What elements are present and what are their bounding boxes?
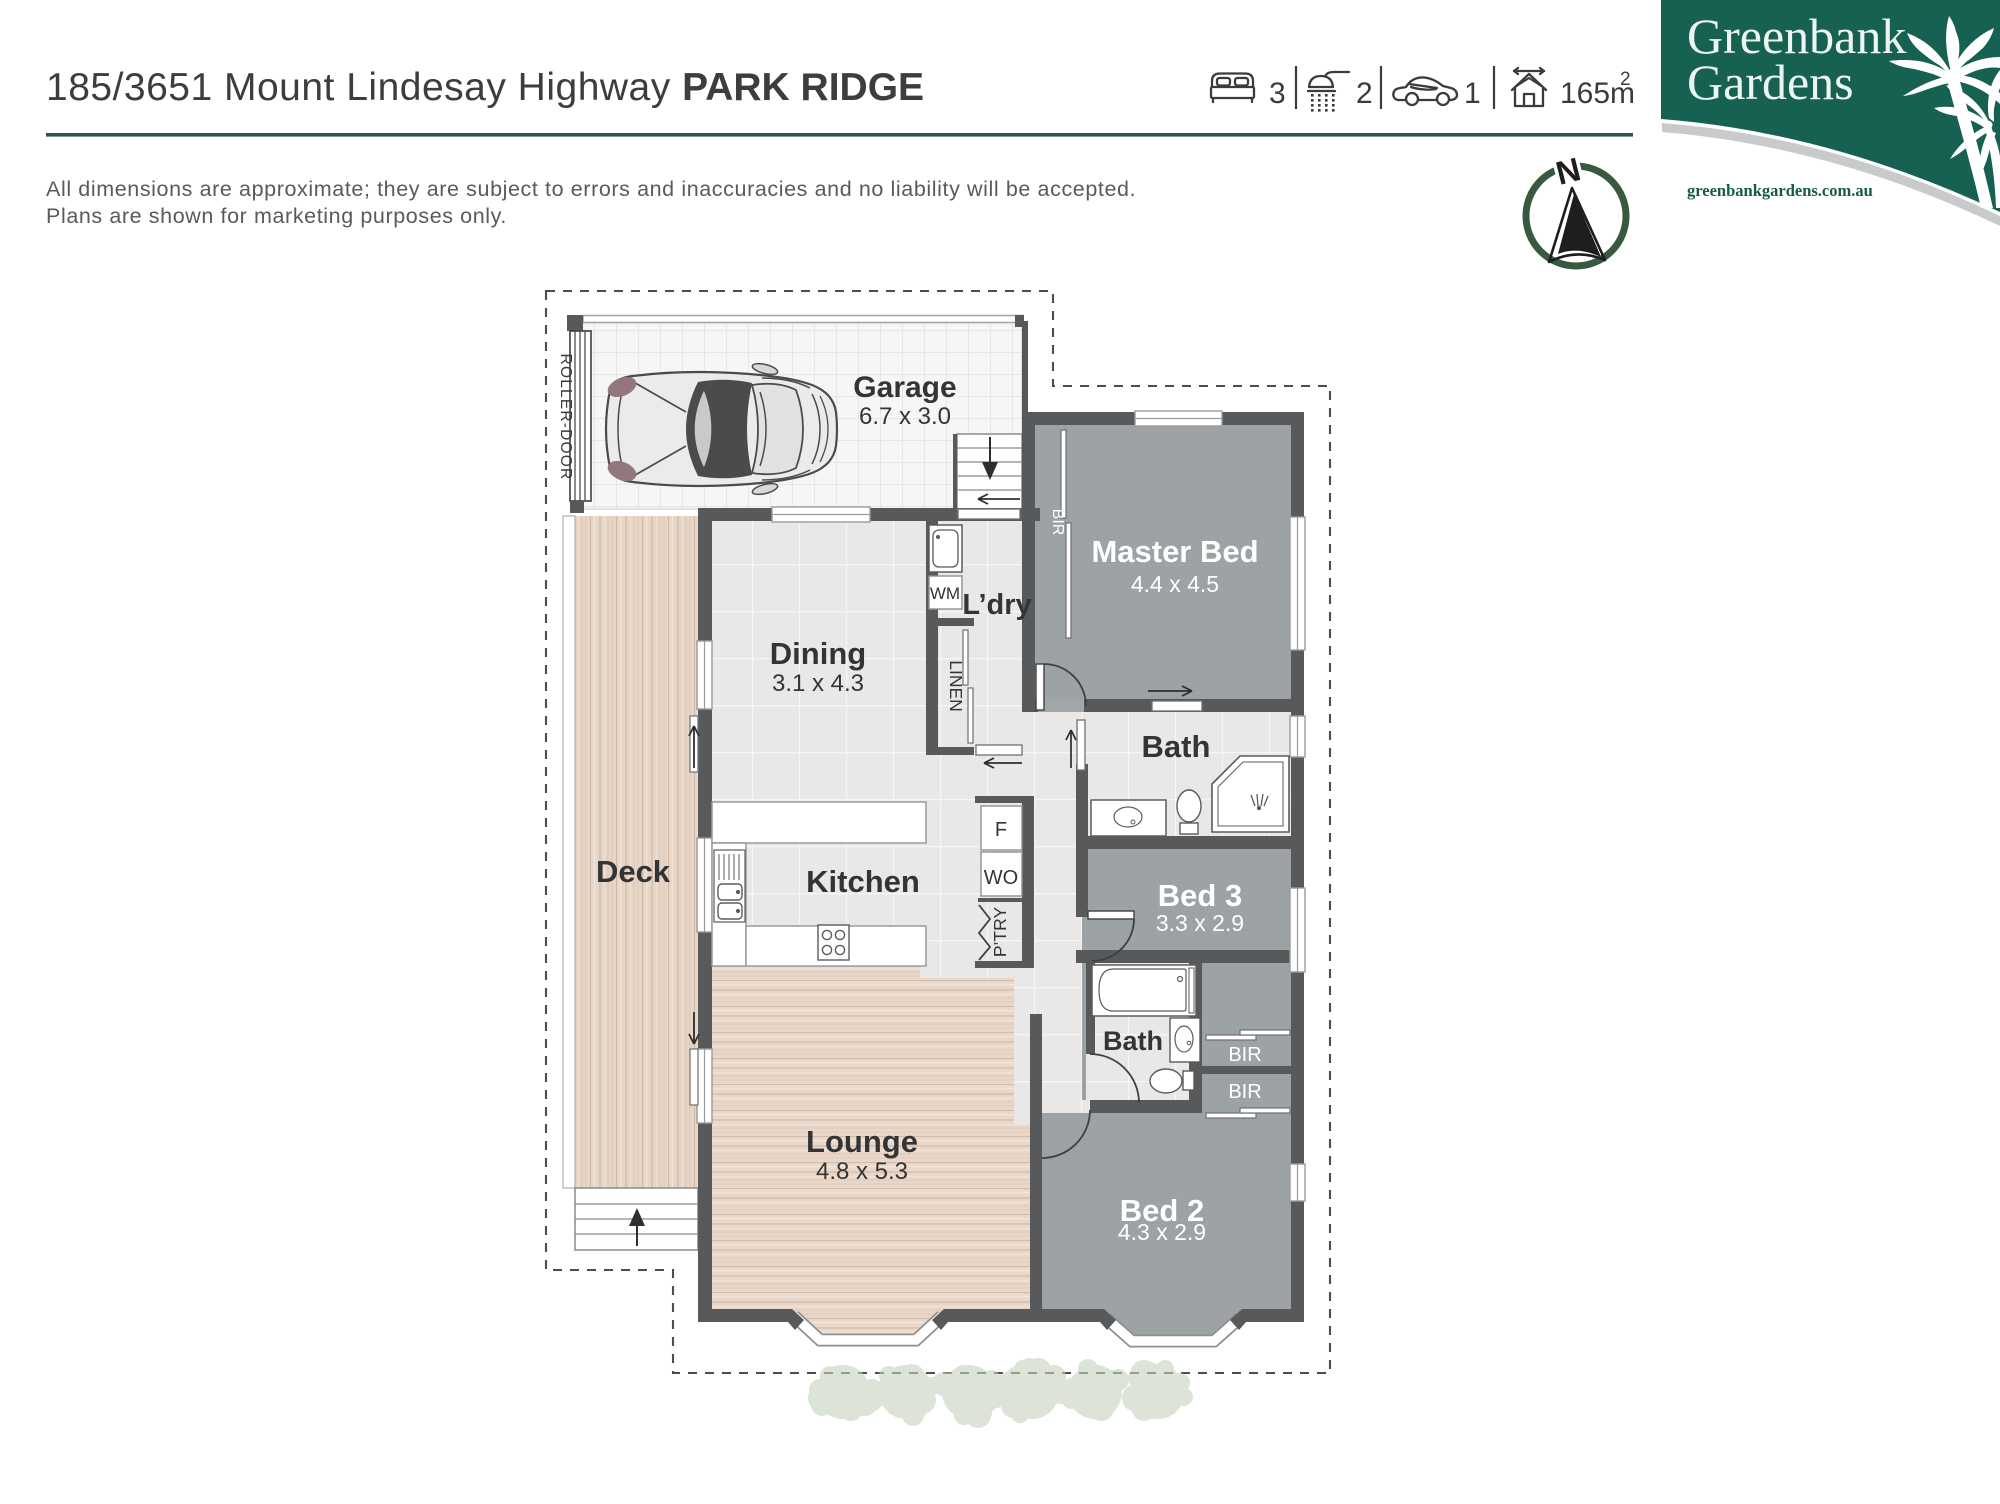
svg-text:LINEN: LINEN bbox=[946, 660, 966, 712]
svg-text:1: 1 bbox=[1464, 77, 1481, 110]
svg-text:F: F bbox=[995, 819, 1007, 841]
svg-text:2: 2 bbox=[1620, 69, 1631, 90]
svg-text:Dining: Dining bbox=[770, 636, 866, 671]
svg-text:WO: WO bbox=[984, 867, 1018, 889]
svg-text:All dimensions are approximate: All dimensions are approximate; they are… bbox=[46, 177, 1136, 201]
svg-text:BIR: BIR bbox=[1228, 1081, 1261, 1103]
svg-text:WM: WM bbox=[930, 584, 960, 603]
svg-text:3: 3 bbox=[1269, 77, 1286, 110]
svg-text:Deck: Deck bbox=[596, 854, 671, 889]
svg-text:Garage: Garage bbox=[853, 371, 956, 404]
svg-text:3.3 x 2.9: 3.3 x 2.9 bbox=[1156, 910, 1244, 936]
svg-text:4.8 x 5.3: 4.8 x 5.3 bbox=[816, 1158, 908, 1185]
svg-text:Lounge: Lounge bbox=[806, 1124, 918, 1159]
svg-text:Bath: Bath bbox=[1103, 1026, 1163, 1056]
svg-text:2: 2 bbox=[1356, 77, 1373, 110]
svg-text:Plans are shown for marketing: Plans are shown for marketing purposes o… bbox=[46, 204, 507, 228]
svg-text:6.7 x 3.0: 6.7 x 3.0 bbox=[859, 403, 951, 430]
svg-text:3.1 x 4.3: 3.1 x 4.3 bbox=[772, 670, 864, 697]
svg-text:greenbankgardens.com.au: greenbankgardens.com.au bbox=[1687, 181, 1873, 200]
svg-text:BIR: BIR bbox=[1228, 1044, 1261, 1066]
svg-text:L’dry: L’dry bbox=[962, 589, 1031, 621]
svg-text:Bath: Bath bbox=[1142, 729, 1211, 764]
svg-text:Master Bed: Master Bed bbox=[1091, 534, 1258, 569]
svg-text:Kitchen: Kitchen bbox=[806, 864, 920, 899]
svg-text:ROLLER-DOOR: ROLLER-DOOR bbox=[557, 354, 574, 481]
svg-text:4.4 x 4.5: 4.4 x 4.5 bbox=[1131, 571, 1219, 597]
svg-text:P’TRY: P’TRY bbox=[990, 907, 1010, 958]
svg-text:4.3 x 2.9: 4.3 x 2.9 bbox=[1118, 1219, 1206, 1245]
svg-text:Bed 3: Bed 3 bbox=[1158, 878, 1242, 913]
svg-text:185/3651 Mount Lindesay Highwa: 185/3651 Mount Lindesay Highway PARK RID… bbox=[46, 66, 924, 109]
svg-text:Gardens: Gardens bbox=[1687, 54, 1854, 110]
svg-text:BIR: BIR bbox=[1049, 509, 1066, 536]
